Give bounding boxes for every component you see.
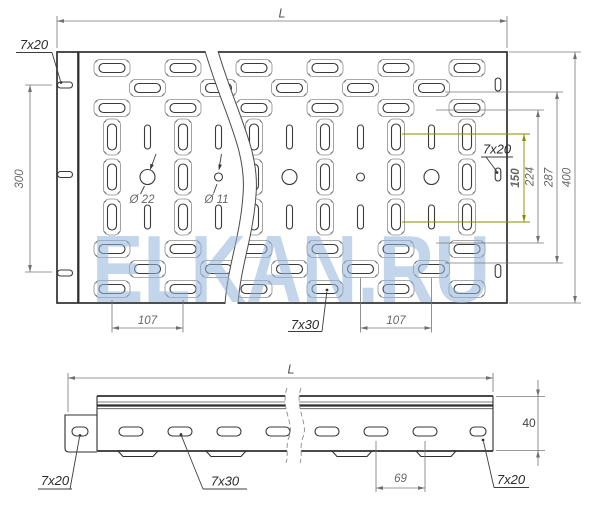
slit-instance [429, 125, 435, 149]
round-hole-11 [215, 173, 223, 181]
dim-300-label: 300 [14, 169, 26, 189]
slotH-instance [165, 100, 201, 117]
slit-instance [287, 125, 293, 149]
slotH-instance [94, 60, 130, 77]
slotV-instance [175, 159, 192, 195]
slotH-instance [307, 60, 343, 77]
slotH-instance [236, 60, 272, 77]
watermark-text: ELKAN.RU [92, 216, 490, 323]
cad-drawing-page: ELKAN.RU L 300 107 107 150 224 [0, 0, 600, 519]
slotH-instance [165, 60, 201, 77]
slotH-instance [378, 100, 414, 117]
dim-40-label: 40 [522, 416, 536, 430]
slotV-instance [104, 159, 121, 195]
dim-224-label: 224 [525, 167, 537, 187]
slotH-instance [94, 100, 130, 117]
dim-L-top-label: L [279, 7, 286, 21]
slit-instance [145, 125, 151, 149]
dim-length-top: L [57, 7, 507, 49]
slotH-instance [272, 80, 308, 97]
callout-side-right-label: 7x20 [497, 472, 526, 487]
dim-150-label: 150 [510, 168, 522, 188]
slotH-instance [236, 100, 272, 117]
dim-400-label: 400 [562, 167, 574, 187]
callout-side-middle-label: 7x30 [211, 474, 240, 489]
callout-hole-11-label: Ø 11 [203, 194, 228, 206]
dim-300: 300 [14, 85, 52, 272]
sSlot30-instance [413, 427, 437, 436]
round-hole-11 [357, 173, 365, 181]
slotV-instance [459, 119, 476, 155]
dim-287-label: 287 [544, 167, 556, 188]
side-view [65, 388, 493, 463]
callout-flange-label: 7x20 [20, 37, 49, 52]
sSlot30-instance [119, 427, 143, 436]
slotV-instance [317, 119, 334, 155]
padSlotH-instance [58, 172, 73, 178]
padSlotV-instance [495, 265, 501, 278]
callout-side-left-label: 7x20 [41, 473, 70, 488]
slotV-instance [175, 119, 192, 155]
slotH-instance [378, 60, 414, 77]
slit-instance [358, 125, 364, 149]
sSlot30-instance [217, 427, 241, 436]
callout-edge-7x20: 7x20 [481, 142, 513, 174]
callout-side-middle-7x30: 7x30 [180, 433, 247, 489]
end-connector-plate [65, 415, 97, 452]
callout-side-right-7x20: 7x20 [482, 439, 529, 488]
padSlotV-instance [495, 78, 501, 91]
callout-flange-7x20: 7x20 [16, 37, 62, 84]
dim-107-right-label: 107 [386, 315, 406, 327]
slotH-instance [343, 80, 379, 97]
sSlot20-instance [470, 427, 486, 436]
callout-edge-label: 7x20 [483, 142, 512, 157]
slotH-instance [307, 100, 343, 117]
slotH-instance [449, 100, 485, 117]
dim-69-label: 69 [394, 473, 407, 485]
round-hole-22 [140, 170, 155, 185]
callout-side-left-7x20: 7x20 [38, 434, 81, 489]
callout-hole-22: Ø 22 [129, 154, 156, 206]
round-hole-22 [282, 170, 297, 185]
slotV-instance [459, 159, 476, 195]
slit-instance [216, 125, 222, 149]
round-hole-22 [424, 170, 439, 185]
dim-40: 40 [496, 380, 545, 466]
callout-main-label: 7x30 [291, 317, 320, 332]
slotV-instance [104, 119, 121, 155]
slotV-instance [317, 159, 334, 195]
sSlot30-instance [315, 427, 339, 436]
dim-L-side-label: L [288, 363, 295, 377]
slotH-instance [414, 80, 450, 97]
dim-69: 69 [376, 441, 425, 492]
slotV-instance [388, 159, 405, 195]
cable-tray-technical-drawing: ELKAN.RU L 300 107 107 150 224 [0, 0, 600, 519]
slotV-instance [388, 119, 405, 155]
sSlot30-instance [364, 427, 388, 436]
slotH-instance [130, 80, 166, 97]
side-slot-pattern [72, 427, 486, 457]
padSlotH-instance [58, 270, 73, 276]
sSlot30-instance [266, 427, 290, 436]
dim-107-left-label: 107 [138, 315, 158, 327]
slotH-instance [449, 60, 485, 77]
callout-hole-22-label: Ø 22 [129, 194, 156, 206]
